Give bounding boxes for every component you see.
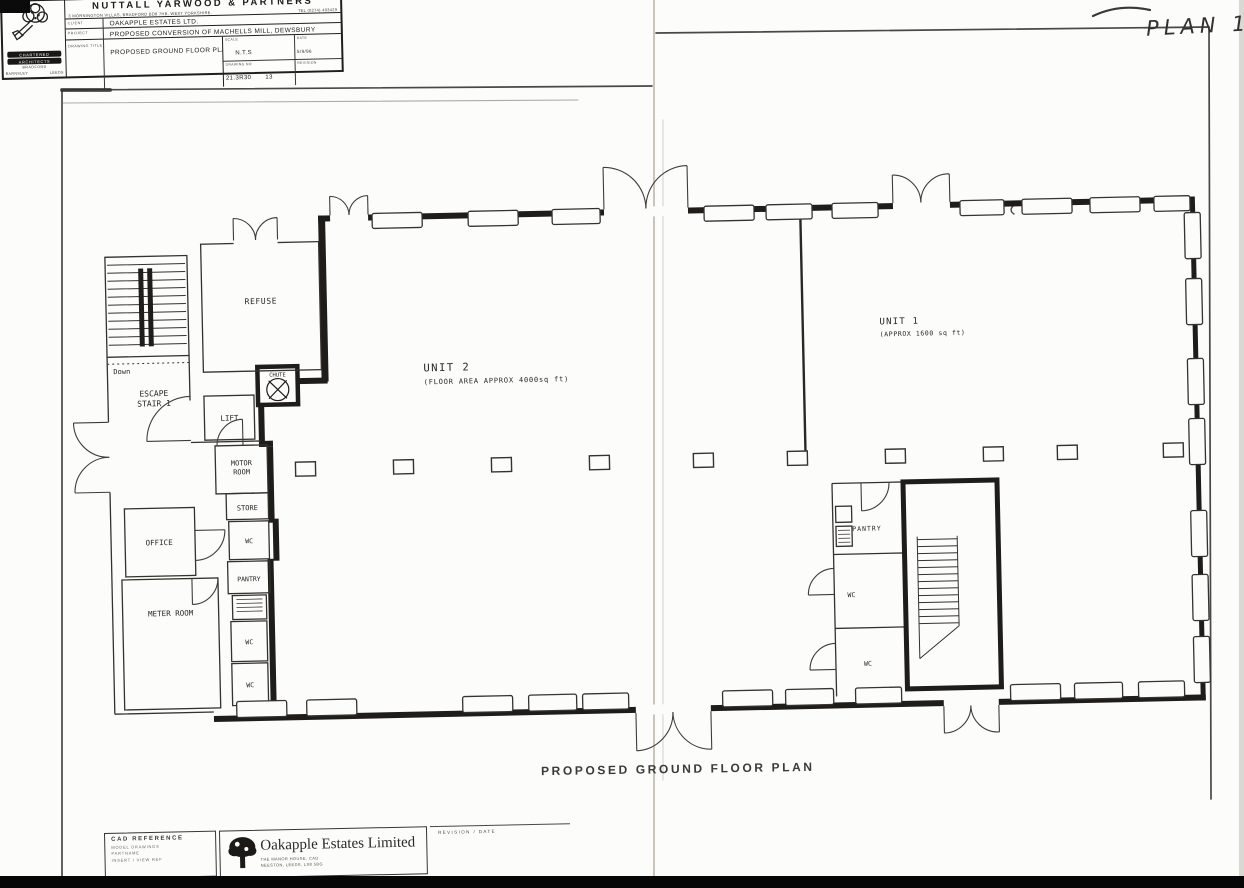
cad-line: INSERT / VIEW REF <box>112 855 210 862</box>
revision-date-panel: REVISION / DATE <box>430 823 571 870</box>
label-lift: LIFT <box>220 413 239 422</box>
label-store: STORE <box>237 504 258 512</box>
cad-reference-box: CAD REFERENCE MODEL DRAWINGS PARTNAME IN… <box>104 831 217 879</box>
label-unit2-name: UNIT 2 <box>423 361 470 374</box>
escape-stair-enclosure <box>105 256 189 358</box>
fixture <box>835 506 851 522</box>
oakapple-stamp: Oakapple Estates Limited THE MANOR HOUSE… <box>219 826 428 878</box>
windows-right <box>1184 212 1210 682</box>
label-down: Down <box>113 368 130 376</box>
meter-room <box>122 578 221 710</box>
handwritten-plan-ref: PLAN 1 <box>1145 11 1244 40</box>
label-unit1-area: (APPROX 1600 sq ft) <box>880 329 966 339</box>
room-labels: REFUSE CHUTE LIFT MOTOR ROOM STORE WC PA… <box>112 282 973 693</box>
stair-right-treads <box>917 536 960 659</box>
floor-plan: REFUSE CHUTE LIFT MOTOR ROOM STORE WC PA… <box>68 154 1211 763</box>
scanned-drawing-sheet: REFUSE CHUTE LIFT MOTOR ROOM STORE WC PA… <box>0 0 1244 888</box>
oakapple-text: Oakapple Estates Limited THE MANOR HOUSE… <box>260 830 416 873</box>
label-wc-right-1: WC <box>847 591 855 599</box>
label-escape-2: STAIR 1 <box>137 399 171 409</box>
label-office: OFFICE <box>145 538 173 548</box>
floor-plan-svg: REFUSE CHUTE LIFT MOTOR ROOM STORE WC PA… <box>0 0 1244 888</box>
fixture <box>836 526 852 546</box>
door-arcs <box>68 159 1000 763</box>
label-wc-3: WC <box>246 681 254 689</box>
label-motor-2: ROOM <box>233 468 250 476</box>
scan-corner-mark <box>0 0 30 13</box>
label-chute: CHUTE <box>269 372 286 378</box>
scan-bottom-bar <box>0 876 1244 888</box>
label-motor-1: MOTOR <box>231 459 253 467</box>
windows-top <box>372 196 1190 229</box>
stair-top-left <box>105 264 189 365</box>
label-wc-right-2: WC <box>864 660 872 668</box>
label-escape-1: ESCAPE <box>139 389 168 399</box>
stamp-strip: CAD REFERENCE MODEL DRAWINGS PARTNAME IN… <box>104 823 571 881</box>
revision-date-label: REVISION / DATE <box>438 827 562 835</box>
oakapple-name: Oakapple Estates Limited <box>260 834 415 854</box>
label-wc-1: WC <box>245 537 253 545</box>
label-pantry-right: PANTRY <box>852 524 882 533</box>
oakapple-tree-icon <box>226 834 261 875</box>
refuse-room <box>201 242 322 373</box>
label-meter-room: METER ROOM <box>148 608 194 618</box>
label-wc-2: WC <box>245 638 253 646</box>
unit-divider-wall <box>799 211 807 451</box>
label-unit1-name: UNIT 1 <box>879 317 919 328</box>
label-refuse: REFUSE <box>245 297 278 307</box>
column-markers <box>295 443 1183 476</box>
label-unit2-area: (FLOOR AREA APPROX 4000sq ft) <box>424 375 570 386</box>
label-pantry-left: PANTRY <box>237 575 261 584</box>
